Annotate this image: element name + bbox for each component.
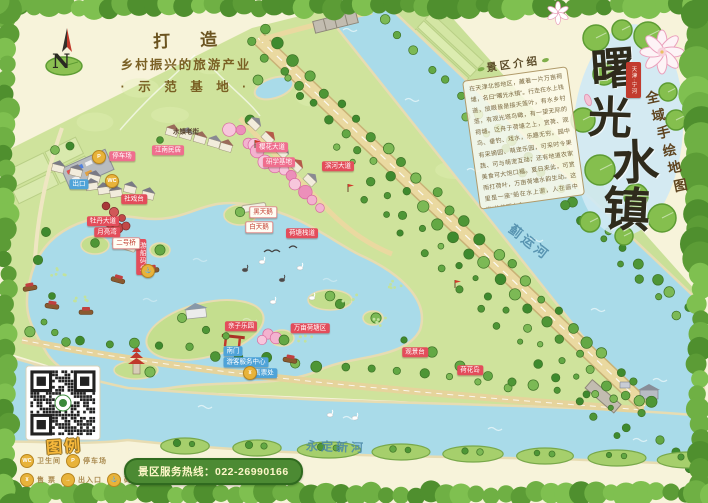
river-label-yongding: 永定新河	[306, 437, 367, 456]
legend-item: ¥售 票	[20, 473, 56, 487]
ticket-icon: ¥	[20, 473, 34, 487]
toilet-icon: WC	[20, 454, 34, 468]
lotus-flower	[640, 30, 684, 74]
legend-item-label: 出入口	[78, 475, 102, 485]
anchor-icon: ⚓	[107, 473, 121, 487]
legend-item-label: 停车场	[83, 456, 107, 466]
compass: N	[40, 22, 88, 78]
hotline-number: 022-26990166	[215, 466, 289, 478]
compass-n-label: N	[52, 49, 70, 73]
slogan-line1: 打 造	[106, 23, 277, 54]
legend-item-label: 售 票	[37, 475, 56, 485]
slogan-line3: · 示 范 基 地 ·	[96, 76, 276, 95]
intro-panel: 景区介绍 在天津北部地区，藏着一片万亩荷塘，名曰“曙光水镇”。行走在水上栈道，放…	[460, 49, 587, 218]
gate-icon: →	[61, 473, 75, 487]
legend-item: P停车场	[66, 454, 107, 468]
hotline-label: 景区服务热线：	[138, 466, 215, 478]
legend-item: →出入口	[61, 473, 102, 487]
intro-body: 在天津北部地区，藏着一片万亩荷塘，名曰“曙光水镇”。行走在水上栈道，放眼皆是接天…	[469, 72, 581, 210]
legend-item: WC卫生间	[20, 454, 61, 468]
hotline-pill: 景区服务热线：022-26990166	[124, 458, 303, 485]
leaf-icon	[477, 67, 484, 72]
slogan-block: 打 造 乡村振兴的旅游产业 · 示 范 基 地 ·	[96, 26, 276, 95]
parking-icon: P	[66, 454, 80, 468]
legend-item-label: 卫生间	[37, 456, 61, 466]
intro-text-box: 在天津北部地区，藏着一片万亩荷塘，名曰“曙光水镇”。行走在水上栈道，放眼皆是接天…	[462, 66, 585, 209]
title-seal: 天津·宁河	[626, 62, 641, 98]
qr-code	[26, 366, 100, 440]
hand-drawn-map-page: N 打 造 乡村振兴的旅游产业 · 示 范 基 地 · 景区介绍 在天津北部地区…	[0, 0, 708, 503]
slogan-line2: 乡村振兴的旅游产业	[96, 54, 276, 73]
leaf-icon	[542, 58, 549, 63]
